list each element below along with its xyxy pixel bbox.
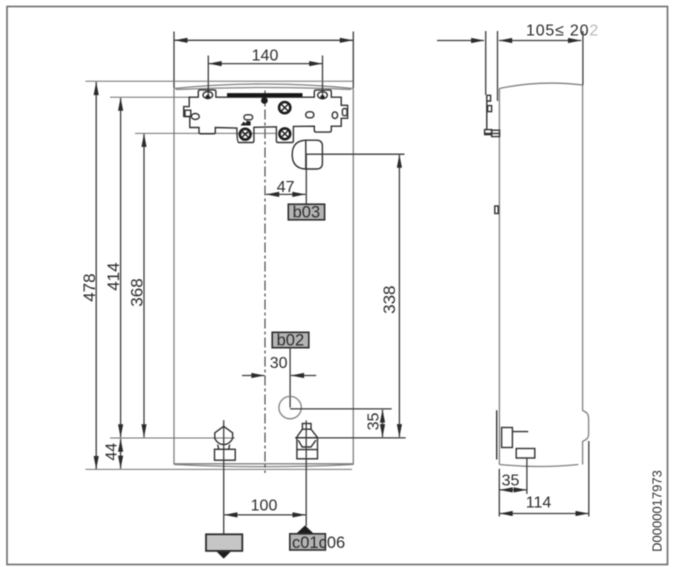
svg-text:368: 368 xyxy=(128,278,147,306)
svg-text:105≤ 202: 105≤ 202 xyxy=(526,23,599,40)
svg-text:30: 30 xyxy=(270,355,288,372)
svg-text:100: 100 xyxy=(251,498,278,515)
svg-text:b02: b02 xyxy=(277,331,305,349)
svg-text:140: 140 xyxy=(252,48,279,65)
svg-text:c01c06: c01c06 xyxy=(292,534,345,552)
svg-text:414: 414 xyxy=(104,262,123,290)
svg-text:47: 47 xyxy=(277,179,295,196)
svg-text:35: 35 xyxy=(366,413,383,431)
svg-text:338: 338 xyxy=(380,286,399,314)
svg-text:44: 44 xyxy=(104,443,121,461)
svg-text:D0000017973: D0000017973 xyxy=(650,470,665,552)
svg-text:114: 114 xyxy=(526,495,552,512)
svg-text:35: 35 xyxy=(502,473,520,490)
svg-text:478: 478 xyxy=(80,273,99,301)
svg-text:b03: b03 xyxy=(293,203,321,221)
